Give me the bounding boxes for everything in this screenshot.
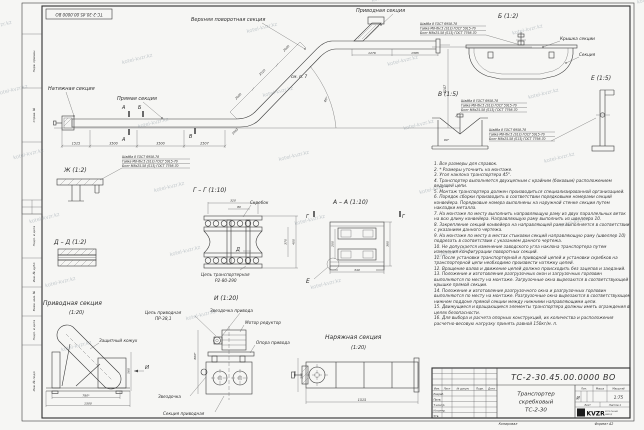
note-item: 16. Для выбора и расчета опорных констру… xyxy=(434,315,631,326)
callout-line: Гайка М8-6Н.5 (S13) ГОСТ 5915-70 xyxy=(420,27,476,31)
view-title: Ж (1:2) xyxy=(63,167,87,174)
dim-label: 200 xyxy=(331,241,335,247)
view-direction-mark: И xyxy=(145,365,149,371)
dim-label: 2000 xyxy=(234,92,242,100)
tb-mass-header: Масса xyxy=(596,387,605,391)
dim-label: 560 xyxy=(127,368,131,374)
label-straight-section: Прямая секция xyxy=(117,96,157,102)
dim-label: 340 xyxy=(354,268,360,272)
tb-sheets-label: Листов 1 xyxy=(608,403,622,407)
dim-label: 255 xyxy=(300,373,304,379)
callout-line: Шайба 8 ГОСТ 6958-78 xyxy=(489,128,526,132)
label-section: Секция xyxy=(579,52,596,57)
note-item: 13. Положение и изготовление разгрузочны… xyxy=(434,271,631,288)
margin-label: Подп. и дата xyxy=(32,226,36,247)
view-title: Г – Г (1:10) xyxy=(193,187,227,194)
view-zh: Ж (1:2) Шайба 8 ГОСТ 6958-78 Гайка М8-6Н… xyxy=(57,155,190,201)
margin-label: Справ. № xyxy=(32,108,36,123)
note-item: 6. Порядок сборки производить в соответс… xyxy=(434,194,631,211)
callout-line: Болт М8х25.58 (S13) ГОСТ 7798-70 xyxy=(122,164,179,168)
tb-scale-header: Масштаб xyxy=(612,387,625,391)
tb-scale-value: 1:75 xyxy=(614,395,624,400)
view-scale: (1:20) xyxy=(351,345,366,351)
tb-row-label: Т.контр. xyxy=(434,403,446,407)
callout-line: Шайба 8 ГОСТ 6958-78 xyxy=(420,22,457,26)
dim-label: 780* xyxy=(82,393,90,397)
dim-label: 2000 xyxy=(282,44,290,52)
dim-label: 1500 xyxy=(84,401,92,405)
view-gg: Г – Г (1:10) 320 80 Скребок Д 370 400 Це… xyxy=(193,187,298,283)
view-title: Б (1:2) xyxy=(498,13,518,20)
margin-label: Подп. и дата xyxy=(32,320,36,341)
fastener-callout: Шайба 8 ГОСТ 6958-78 Гайка М8-6Н.5 (S13)… xyxy=(455,99,527,117)
view-title: И (1:20) xyxy=(214,295,239,302)
callout-line: Болт М8х25.58 (S13) ГОСТ 7798-70 xyxy=(420,31,477,35)
logo-subtext: КОТЕЛЬНЫЙ xyxy=(605,410,618,413)
dim-label: 1515 xyxy=(358,398,366,402)
label-drive-section-part: Секция приводная xyxy=(163,411,205,416)
section-mark: Г xyxy=(306,214,310,220)
dim-label: 320 xyxy=(230,199,236,203)
fastener-callout: Шайба 8 ГОСТ 6958-78 Гайка М8-6Н.5 (S13)… xyxy=(489,118,596,141)
section-mark: В xyxy=(189,134,193,140)
tb-lit-value: И xyxy=(576,396,580,402)
tb-lit-header: Лит. xyxy=(580,387,587,391)
callout-line: Гайка М8-6Н.5 (S13) ГОСТ 5915-70 xyxy=(489,133,545,137)
view-title: Наряжная секция xyxy=(325,334,382,341)
callout-line: Болт М8х25.58 (S13) ГОСТ 7798-70 xyxy=(461,108,518,112)
tb-row-label: Утв. xyxy=(434,414,440,418)
dim-label: 3510 xyxy=(258,68,266,76)
dim-label: 1515 xyxy=(72,142,80,146)
stamp-doc-number: ТС-2-30.45.00.0000 ВО xyxy=(55,12,102,17)
format-label: Формат А2 xyxy=(595,422,614,426)
note-item: 8. Закрепление секций конвейера на напра… xyxy=(434,222,631,233)
tb-col-header: Подп. xyxy=(476,386,484,390)
label-motor-reducer: Мотор редуктор xyxy=(245,320,281,325)
doc-name-line: ТС-2-30 xyxy=(525,408,547,414)
view-title: В (1:5) xyxy=(438,91,458,98)
view-dd: Д – Д (1:2) xyxy=(53,239,96,266)
dim-label: 380 xyxy=(386,241,390,247)
doc-name-line: скребковый xyxy=(519,400,554,406)
margin-label: Инв. № дубл. xyxy=(32,262,36,283)
tb-row-label: Пров. xyxy=(434,397,442,401)
margin-label: Инв. № подл. xyxy=(32,371,36,392)
note-item: 7. На монтаже по месту выполнить направл… xyxy=(434,211,631,222)
view-title: Д – Д (1:2) xyxy=(53,239,86,246)
label-drive-sprocket: Звездочка привода xyxy=(210,308,253,313)
view-i: И (1:20) Цепь приводная ПР-38,1 Звездочк… xyxy=(145,295,290,416)
dim-label: 560 xyxy=(293,371,297,377)
fastener-callout: Шайба 8 ГОСТ 6958-78 Гайка М8-6Н.5 (S13)… xyxy=(100,155,190,180)
dim-label: 3500 xyxy=(109,142,117,146)
dim-label: 370 xyxy=(284,239,288,245)
section-mark: Г xyxy=(402,214,406,220)
dim-label: 80 xyxy=(237,205,241,209)
dim-label: 1585 xyxy=(411,51,419,55)
view-e: Е (1:5) Шайба 8 ГОСТ 6958-78 Гайка М8-6Н… xyxy=(489,75,614,151)
tb-col-header: Дата xyxy=(487,386,495,390)
drawing-sheet: ТС-2-30.45.00.0000 ВО Перв. примен. Спра… xyxy=(0,0,644,430)
margin-label: Взам. инв. № xyxy=(32,291,36,311)
label-protective-cover: Защитный кожух xyxy=(99,338,138,343)
view-scale: (1:20) xyxy=(69,310,84,316)
label-drive-section: Приводная секция xyxy=(356,8,405,14)
view-aa: А – А (1:10) Г Г Е 200 380 340 xyxy=(306,199,406,285)
dim-label: 1276 xyxy=(368,51,376,55)
view-b: Б (1:2) Шайба 8 ГОСТ 6958-78 Гайка М8-6Н… xyxy=(420,13,596,79)
label-sprocket: Звездочка xyxy=(158,394,181,399)
note-item: 4. Транспортер выполняется двухцепным с … xyxy=(434,178,631,189)
dim-label: 90° xyxy=(444,138,450,142)
label-tension-section: Натяжная секция xyxy=(48,86,95,92)
callout-line: Шайба 8 ГОСТ 6958-78 xyxy=(122,155,159,159)
callout-line: Шайба 8 ГОСТ 6958-78 xyxy=(461,99,498,103)
dim-label: 400 xyxy=(292,239,296,245)
logo-mark xyxy=(577,409,585,417)
tb-row-label: Разраб. xyxy=(434,392,445,396)
label-scraper: Скребок xyxy=(250,200,269,205)
copied-label: Копировал xyxy=(499,422,519,426)
view-title: Е (1:5) xyxy=(591,75,611,82)
label-drive-support: Опора привода xyxy=(256,340,290,345)
dim-label: 2507 xyxy=(200,142,209,146)
note-item: 9. На монтаже по месту в местах стыковки… xyxy=(434,233,631,244)
label-see-note: см. п. 7 xyxy=(291,74,308,79)
detail-mark: Е xyxy=(306,278,310,285)
label-section-cover: Крышка секции xyxy=(560,36,595,41)
tb-row-label: Н.контр. xyxy=(434,408,446,412)
label-drive-chain: Цепь приводная xyxy=(145,310,182,315)
callout-line: Болт М8х25.58 (S13) ГОСТ 7798-70 xyxy=(489,137,546,141)
doc-name-line: Транспортер xyxy=(517,392,555,398)
margin-labels: Перв. примен. Справ. № Подп. и дата Инв.… xyxy=(32,50,36,392)
doc-number: ТС-2-30.45.00.0000 ВО xyxy=(511,373,616,382)
callout-line: Гайка М8-6Н.5 (S13) ГОСТ 5915-70 xyxy=(461,104,517,108)
view-title: Приводная секция xyxy=(43,300,102,307)
label-upper-turn-section: Верхняя поворотная секция xyxy=(191,17,265,23)
label-chain-model: Р2-80-290 xyxy=(215,278,237,283)
tb-col-header: Изм. xyxy=(434,386,440,390)
note-item: 11. После установки транспортерной и при… xyxy=(434,255,631,266)
technical-notes: 1. Все размеры для справок. 2. * Размеры… xyxy=(434,161,631,326)
view-tension-section: Наряжная секция (1:20) 1515 560 255 xyxy=(292,334,420,404)
section-mark: А xyxy=(121,137,126,143)
logo-text: KVZR xyxy=(587,411,606,418)
section-mark: Б xyxy=(138,105,142,111)
dim-label: 860* xyxy=(193,352,197,360)
tb-sheet-label: Лист xyxy=(583,403,591,407)
callout-line: Гайка М8-6Н.5 (S13) ГОСТ 5915-70 xyxy=(122,160,178,164)
tb-col-header: № докум. xyxy=(456,387,470,390)
label-drive-chain-model: ПР-38,1 xyxy=(155,316,172,321)
margin-label: Перв. примен. xyxy=(32,50,36,73)
note-item: 14. Положение и изготовление разгрузочно… xyxy=(434,288,631,305)
label-chain: Цепь транспортерная xyxy=(201,272,250,277)
view-drive-section: Приводная секция (1:20) Защитный кожух И… xyxy=(43,300,149,407)
title-block: ТС-2-30.45.00.0000 ВО Транспортер скребк… xyxy=(432,368,630,418)
view-title: А – А (1:10) xyxy=(332,199,368,206)
logo-subtext: ЗАВОД xyxy=(605,413,613,416)
note-item: 10. Не допускается изменение заводского … xyxy=(434,244,631,255)
note-item: 15. Движущиеся и вращающиеся элементы тр… xyxy=(434,304,631,315)
tb-col-header: Лист xyxy=(443,386,451,390)
dim-label: 1063 xyxy=(231,127,239,135)
section-mark: А xyxy=(121,105,126,111)
dim-label: 3500 xyxy=(156,142,164,146)
section-mark: Д xyxy=(235,247,240,253)
